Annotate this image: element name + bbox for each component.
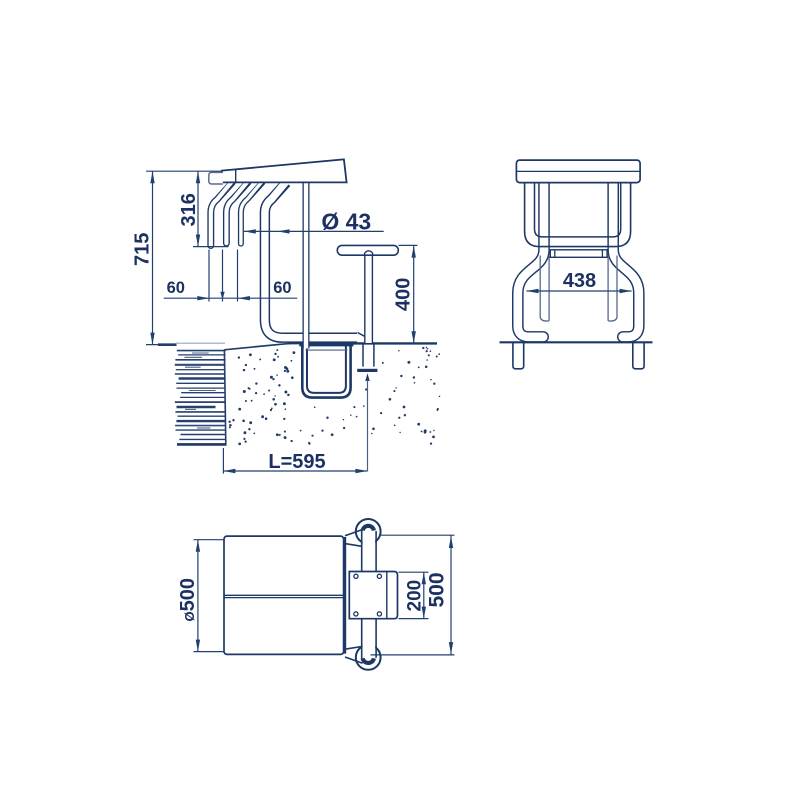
svg-text:200: 200 [405,580,426,612]
svg-text:60: 60 [273,279,291,297]
svg-text:L=595: L=595 [268,451,325,473]
svg-text:438: 438 [563,270,596,292]
svg-text:715: 715 [132,233,154,266]
svg-text:400: 400 [393,278,415,311]
svg-text:500: 500 [426,572,449,607]
svg-text:316: 316 [178,193,200,226]
svg-text:Ø500: Ø500 [177,578,199,622]
svg-text:60: 60 [167,279,185,297]
svg-text:Ø 43: Ø 43 [321,209,371,235]
